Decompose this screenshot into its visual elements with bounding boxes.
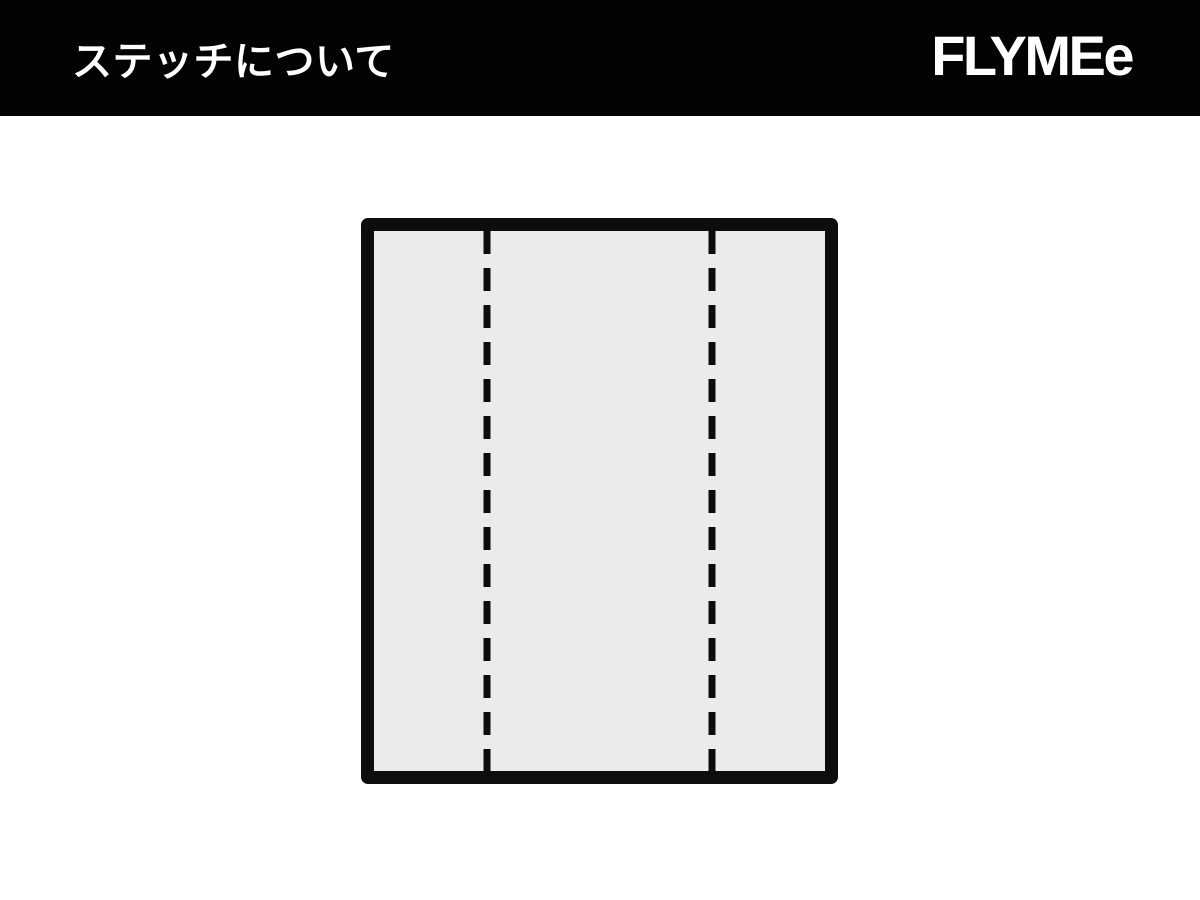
- header-bar: ステッチについて FLYMEe: [0, 0, 1200, 116]
- flymee-logo: FLYMEe: [931, 28, 1132, 88]
- page: ステッチについて FLYMEe: [0, 0, 1200, 900]
- page-title: ステッチについて: [72, 29, 395, 87]
- stitch-line-left: [483, 231, 490, 771]
- diagram-area: [0, 116, 1200, 900]
- fabric-panel: [361, 218, 838, 784]
- stitch-line-right: [709, 231, 716, 771]
